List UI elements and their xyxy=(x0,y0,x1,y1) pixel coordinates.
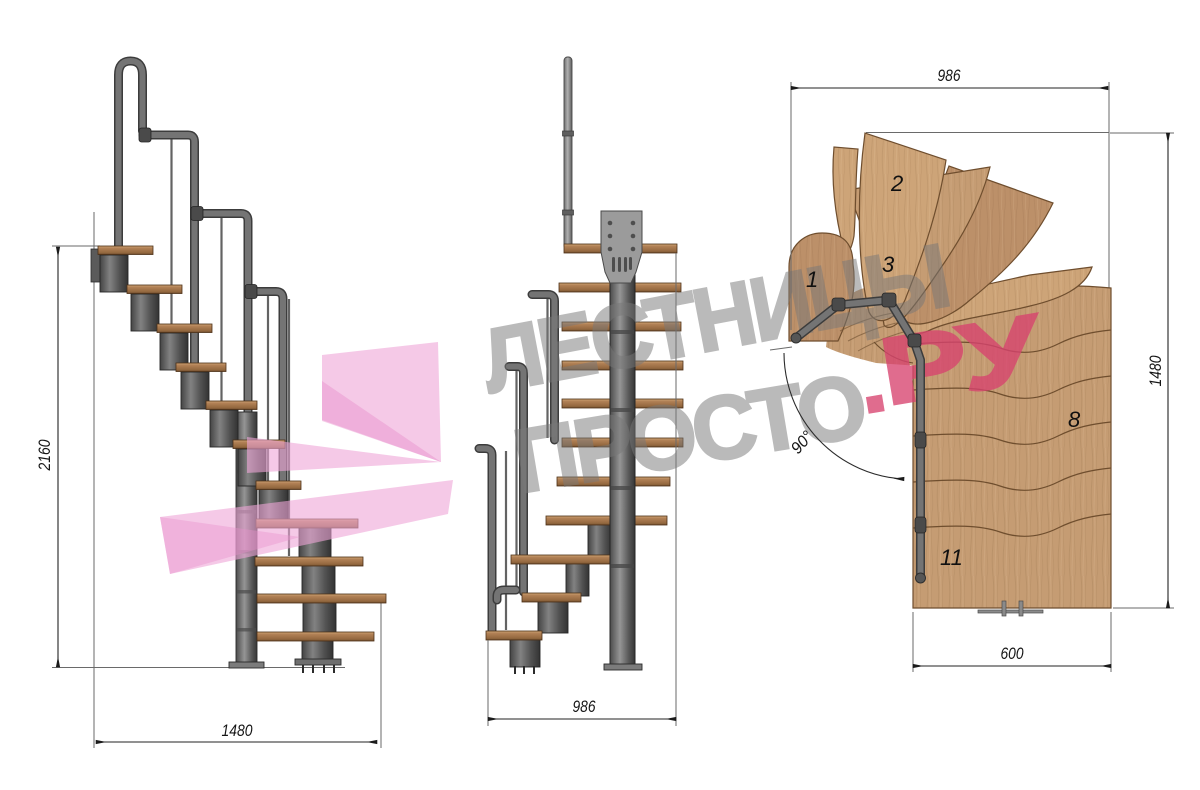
svg-text:1: 1 xyxy=(806,267,818,292)
svg-text:600: 600 xyxy=(1001,645,1025,663)
svg-text:8: 8 xyxy=(1068,407,1081,432)
svg-text:986: 986 xyxy=(938,67,962,85)
svg-text:11: 11 xyxy=(940,545,963,570)
svg-text:1480: 1480 xyxy=(222,722,254,740)
svg-text:3: 3 xyxy=(882,252,895,277)
svg-text:2: 2 xyxy=(890,171,903,196)
svg-text:2160: 2160 xyxy=(36,439,54,472)
svg-text:986: 986 xyxy=(573,698,597,716)
svg-text:1480: 1480 xyxy=(1147,355,1165,387)
